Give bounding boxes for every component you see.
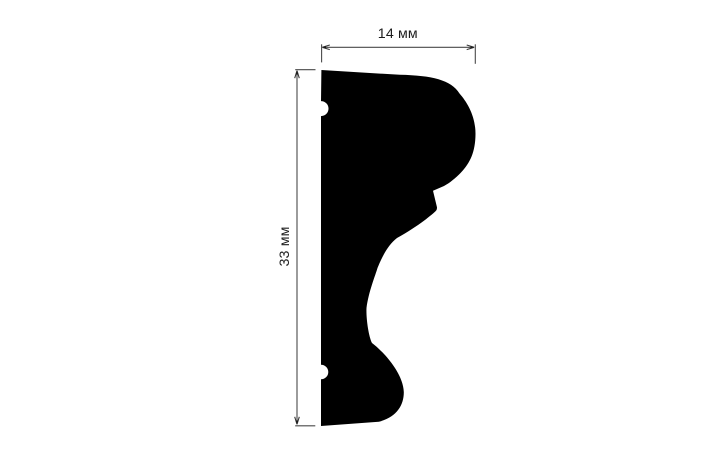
svg-text:14 мм: 14 мм	[378, 26, 418, 42]
svg-text:33 мм: 33 мм	[277, 227, 293, 267]
